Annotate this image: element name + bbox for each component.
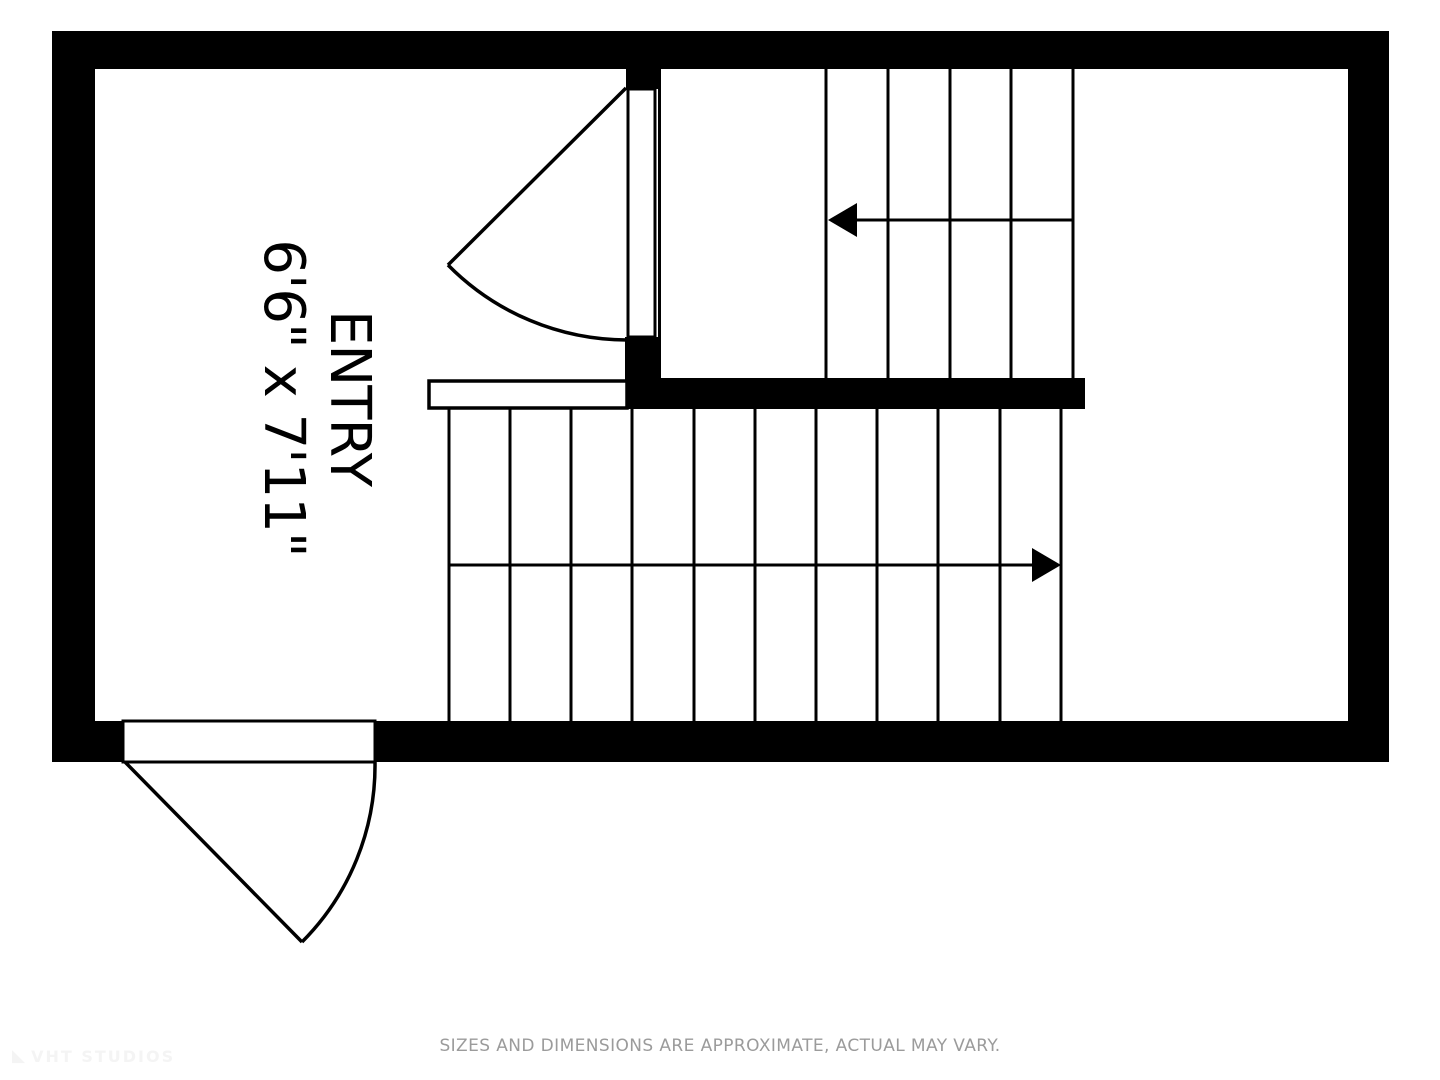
floor-plan-page: ENTRY 6'6" x 7'11" SIZES AND DIMENSIONS … (0, 0, 1440, 1080)
bottom-door-open-leaf-line (125, 762, 302, 942)
arrow-head-right (1032, 548, 1061, 582)
top-door-leaf (628, 89, 655, 337)
top-door-open-leaf-line (448, 88, 626, 265)
vht-logo-icon: ◣ (12, 1046, 27, 1066)
room-name: ENTRY (316, 310, 382, 486)
disclaimer-text: SIZES AND DIMENSIONS ARE APPROXIMATE, AC… (0, 1036, 1440, 1056)
watermark-text: VHT STUDIOS (31, 1047, 175, 1066)
lower-stair-landing (429, 381, 627, 408)
bottom-door-opening (123, 721, 375, 762)
wall-top (52, 31, 1389, 69)
mid-wall-band (625, 378, 1085, 409)
bottom-door-swing-arc (302, 762, 375, 942)
top-door-swing-arc (448, 265, 627, 340)
upper-stairs (826, 69, 1073, 378)
floor-plan-drawing (0, 0, 1440, 1080)
top-door-stub-upper (626, 69, 660, 89)
wall-right (1348, 31, 1389, 762)
top-door (448, 88, 655, 340)
bottom-door (123, 721, 375, 942)
room-label: ENTRY 6'6" x 7'11" (250, 198, 382, 598)
watermark: ◣ VHT STUDIOS (12, 1046, 175, 1066)
interior-walls (625, 69, 1085, 409)
arrow-head-left (828, 203, 857, 237)
room-dimensions: 6'6" x 7'11" (250, 239, 316, 556)
wall-left (52, 31, 95, 762)
